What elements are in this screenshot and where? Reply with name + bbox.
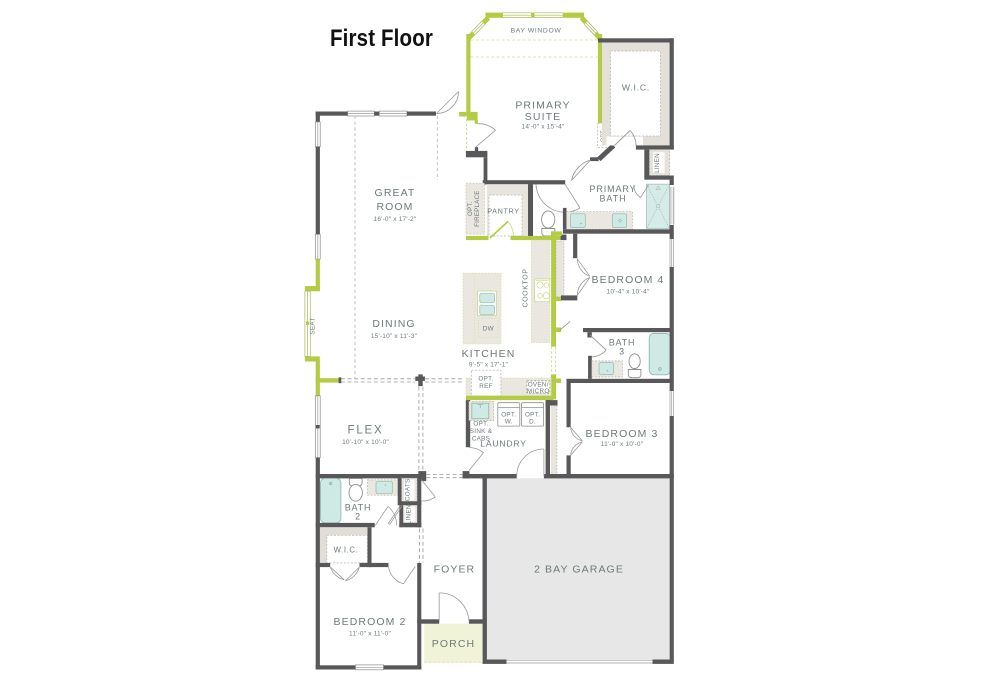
svg-text:BATH: BATH: [600, 194, 627, 204]
svg-text:First Floor: First Floor: [330, 25, 433, 52]
svg-text:BAY WINDOW: BAY WINDOW: [511, 28, 562, 35]
svg-text:BEDROOM 4: BEDROOM 4: [592, 274, 665, 286]
svg-text:OPT.: OPT.: [478, 376, 493, 383]
svg-text:FIREPLACE: FIREPLACE: [474, 190, 481, 227]
svg-text:SEAT: SEAT: [310, 317, 317, 334]
svg-text:3: 3: [619, 347, 625, 357]
svg-text:PANTRY: PANTRY: [487, 207, 520, 216]
svg-text:PORCH: PORCH: [432, 638, 475, 650]
svg-text:DINING: DINING: [372, 318, 415, 330]
svg-text:SUITE: SUITE: [525, 111, 561, 123]
svg-text:ROOM: ROOM: [376, 201, 413, 213]
svg-text:OPT.: OPT.: [525, 412, 540, 419]
svg-text:W.: W.: [505, 419, 513, 426]
svg-text:11'-0" x 11'-0": 11'-0" x 11'-0": [349, 631, 392, 638]
svg-text:GREAT: GREAT: [375, 187, 416, 199]
svg-text:W.I.C.: W.I.C.: [622, 83, 650, 93]
svg-text:LINEN: LINEN: [654, 153, 661, 173]
svg-text:PRIMARY: PRIMARY: [515, 100, 570, 112]
svg-text:16'-0" x 17'-2": 16'-0" x 17'-2": [374, 216, 417, 223]
svg-text:2: 2: [355, 512, 361, 522]
svg-text:OPT.: OPT.: [467, 201, 474, 216]
svg-text:KITCHEN: KITCHEN: [462, 348, 516, 360]
svg-text:OPT.: OPT.: [473, 421, 488, 428]
svg-text:MICRO: MICRO: [527, 388, 550, 395]
svg-text:SINK &: SINK &: [470, 428, 493, 435]
svg-text:COOKTOP: COOKTOP: [523, 268, 530, 307]
svg-text:15'-10" x 11'-3": 15'-10" x 11'-3": [371, 333, 418, 340]
svg-text:FLEX: FLEX: [348, 425, 384, 437]
svg-text:LAUNDRY: LAUNDRY: [480, 439, 527, 449]
svg-text:D.: D.: [529, 419, 536, 426]
svg-text:COATS: COATS: [405, 479, 412, 501]
svg-text:PRIMARY: PRIMARY: [589, 184, 636, 194]
svg-text:DW: DW: [483, 326, 494, 333]
svg-text:LINEN: LINEN: [405, 504, 412, 524]
svg-text:2 BAY GARAGE: 2 BAY GARAGE: [534, 564, 624, 576]
svg-text:11'-0" x 10'-0": 11'-0" x 10'-0": [601, 441, 644, 448]
svg-text:REF: REF: [479, 383, 493, 390]
svg-text:OPT.: OPT.: [501, 412, 516, 419]
svg-text:BEDROOM 3: BEDROOM 3: [586, 428, 659, 440]
svg-text:FOYER: FOYER: [434, 564, 476, 576]
svg-text:W.I.C.: W.I.C.: [334, 546, 359, 555]
svg-text:10'-10" x 10'-0": 10'-10" x 10'-0": [342, 439, 389, 446]
svg-text:14'-0" x 15'-4": 14'-0" x 15'-4": [522, 124, 565, 131]
svg-text:10'-4" x 10'-4": 10'-4" x 10'-4": [607, 289, 650, 296]
svg-text:BEDROOM 2: BEDROOM 2: [334, 616, 407, 628]
svg-text:9'-5" x 17'-1": 9'-5" x 17'-1": [469, 362, 509, 369]
